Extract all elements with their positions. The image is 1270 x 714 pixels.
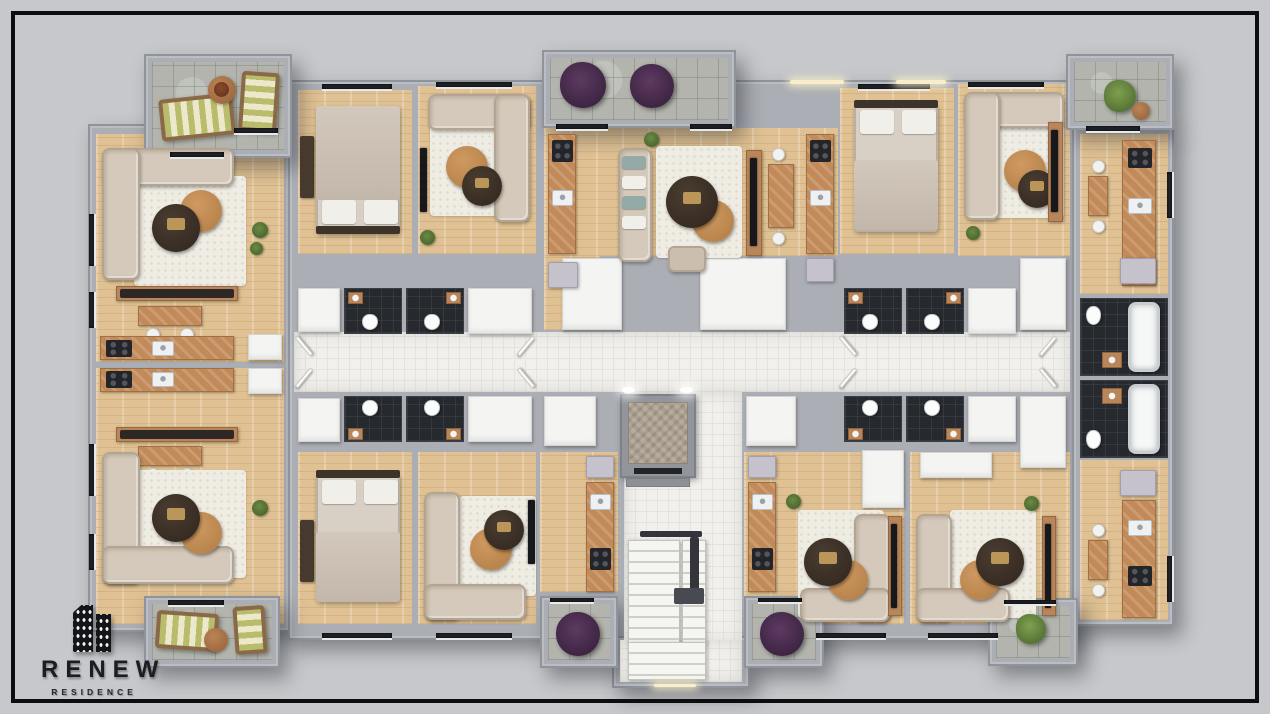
logo-subtitle: RESIDENCE [34,687,150,697]
building-tall-icon [73,605,93,652]
logo-title: RENEW [34,656,150,684]
logo-buildings-icon [34,602,150,652]
floor-plan-render: RENEW RESIDENCE [0,0,1270,714]
logo: RENEW RESIDENCE [34,602,150,697]
picture-frame-border [11,11,1259,703]
building-short-icon [96,614,111,652]
